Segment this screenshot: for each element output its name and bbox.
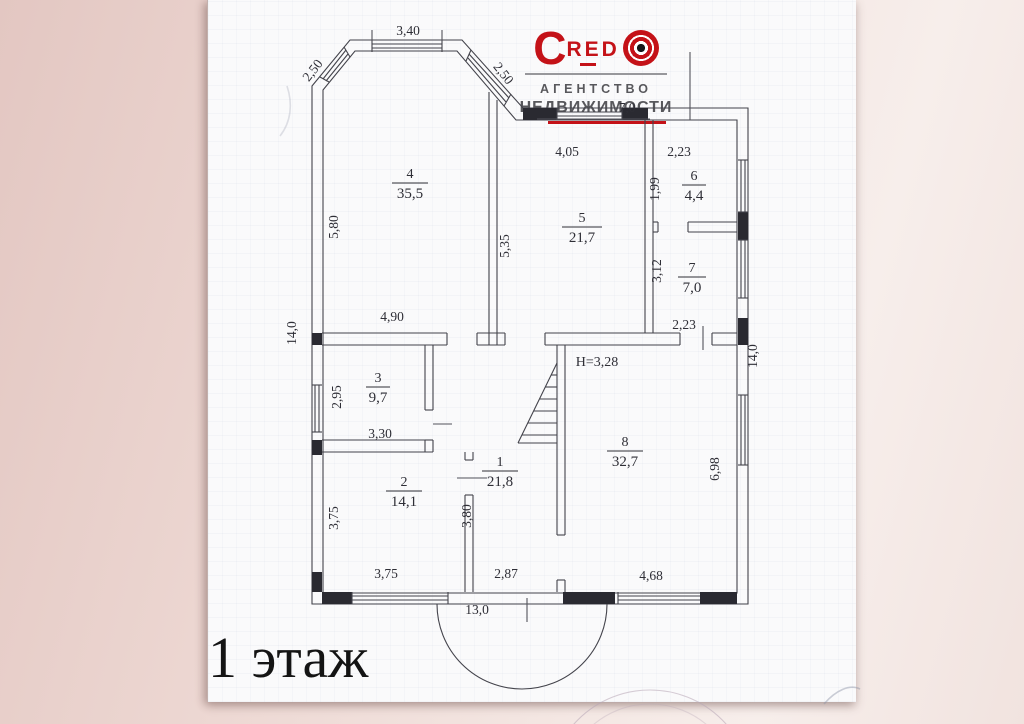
staircase [518, 363, 557, 443]
plan-line [323, 50, 346, 79]
room-7-area: 7,0 [683, 280, 702, 296]
room-labels: 1 21,8 2 14,1 3 9,7 4 35,5 5 21,7 6 4,4 … [369, 167, 704, 510]
dim-room7-width: 2,23 [672, 317, 696, 332]
dim-bay-top: 3,40 [396, 23, 420, 38]
room-8-area: 32,7 [612, 454, 639, 470]
dim-top-width: 7,0 [619, 100, 636, 115]
plan-line [437, 604, 607, 689]
room-6-number: 6 [691, 169, 698, 184]
dim-room8-height: 6,98 [707, 457, 722, 481]
room-4-number: 4 [407, 167, 414, 182]
pencil-marks [280, 86, 860, 704]
room-1-area: 21,8 [487, 474, 513, 490]
dim-bay-right: 2,50 [490, 59, 517, 87]
dim-right-height: 14,0 [745, 344, 760, 368]
plan-line [312, 440, 322, 455]
room-2-number: 2 [401, 475, 408, 490]
plan-line [548, 690, 752, 724]
room-8-number: 8 [622, 435, 629, 450]
room-7-number: 7 [689, 261, 696, 276]
floor-title: 1 этаж [208, 624, 368, 691]
screenshot-stage: C RED АГЕНТСТВО НЕДВИЖИМОСТИ [0, 0, 1024, 724]
dim-room2-width: 3,75 [374, 566, 398, 581]
plan-line [700, 592, 737, 604]
porch-semicircle [437, 604, 607, 689]
wall-piers [312, 108, 748, 604]
dim-room4-width: 4,90 [380, 309, 404, 324]
dim-left-height: 14,0 [284, 321, 299, 345]
interior-walls [322, 92, 737, 592]
room-4-area: 35,5 [397, 186, 423, 202]
plan-line [562, 704, 738, 724]
dim-hall-width: 2,87 [494, 566, 518, 581]
room-6-area: 4,4 [685, 188, 704, 204]
room-1-number: 1 [497, 455, 504, 470]
dim-room6-height: 1,99 [647, 177, 662, 201]
plan-line [523, 108, 557, 120]
dimension-labels: 3,40 2,50 2,50 7,0 4,05 2,23 1,99 5,35 5… [284, 23, 760, 617]
plan-line [824, 687, 860, 704]
plan-line [312, 572, 322, 592]
room-5-number: 5 [579, 211, 586, 226]
dim-room3-width: 3,30 [368, 426, 392, 441]
plan-line [280, 86, 290, 136]
plan-line [326, 54, 348, 81]
plan-line [738, 318, 748, 345]
plan-line [563, 592, 615, 604]
plan-line [738, 212, 748, 240]
stamp-mark [548, 690, 752, 724]
dim-room7-height: 3,12 [649, 259, 664, 283]
dim-room2-height: 3,75 [326, 506, 341, 530]
dim-room3-height: 2,95 [329, 385, 344, 409]
dim-bay-left: 2,50 [299, 56, 326, 84]
dim-room5-height: 5,35 [497, 234, 512, 258]
room-label-bars [366, 183, 706, 491]
room-3-number: 3 [375, 371, 382, 386]
room-5-area: 21,7 [569, 230, 596, 246]
dim-hall-height: 3,80 [459, 504, 474, 528]
room-3-area: 9,7 [369, 390, 388, 406]
dim-bottom-width: 13,0 [465, 602, 489, 617]
ceiling-height-note: Н=3,28 [576, 355, 619, 370]
dim-room6-width: 2,23 [667, 144, 691, 159]
plan-line [322, 592, 352, 604]
room-2-area: 14,1 [391, 494, 417, 510]
floor-plan-drawing: 1 21,8 2 14,1 3 9,7 4 35,5 5 21,7 6 4,4 … [0, 0, 1024, 724]
plan-line [312, 333, 322, 345]
dim-room5-width: 4,05 [555, 144, 579, 159]
dim-room4-height: 5,80 [326, 215, 341, 239]
dim-room8-width: 4,68 [639, 568, 663, 583]
